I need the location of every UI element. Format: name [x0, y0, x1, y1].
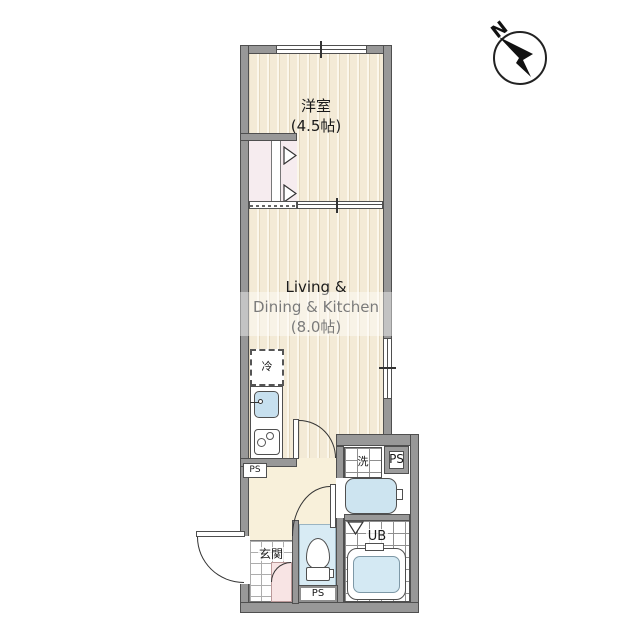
wall-washroom-top: [336, 434, 419, 446]
pipe-space-label: PS: [249, 465, 260, 477]
entrance-label: 玄関: [249, 547, 293, 563]
washbasin-faucet: [396, 489, 403, 500]
entrance-name: 玄関: [258, 547, 284, 561]
faucet-icon: [258, 399, 263, 404]
toilet-door-leaf: [330, 484, 336, 528]
compass: N: [486, 12, 550, 90]
kitchen-sink: [254, 391, 279, 418]
pipe-space-right: PS: [385, 447, 408, 473]
divider-hatch: [249, 201, 297, 209]
bedroom-name: 洋室: [249, 97, 383, 117]
wall-washroom-left: [336, 446, 344, 613]
refrigerator-label: 冷: [262, 360, 273, 375]
burner-icon: [257, 438, 266, 447]
pipe-space-label: PS: [312, 587, 324, 600]
bedroom-size: (4.5帖): [249, 117, 383, 137]
compass-north-label: N: [487, 17, 512, 43]
watermark: [160, 292, 490, 336]
washer-space: 洗: [344, 447, 382, 478]
refrigerator-space: 冷: [250, 349, 284, 386]
toilet-tank: [306, 567, 330, 581]
pipe-space-left: PS: [243, 463, 267, 478]
window-top-tick: [320, 41, 322, 58]
bathtub-inner: [353, 556, 400, 593]
compass-needle-icon: [499, 37, 533, 77]
pipe-space-bottom: PS: [299, 586, 337, 602]
sliding-door: [297, 201, 383, 209]
closet-folding-door-icon: [283, 146, 297, 165]
window-right-tick: [379, 367, 396, 369]
burner-icon: [266, 432, 274, 440]
washroom-door-opening: [336, 478, 344, 518]
wall-bottom: [240, 602, 419, 613]
wall-right-lower: [410, 434, 419, 613]
toilet-control: [329, 569, 334, 578]
toilet-bowl: [306, 538, 330, 569]
floorplan-canvas: 冷 洗 PS UB PS PS: [0, 0, 640, 640]
washbasin: [345, 478, 397, 514]
bathtub-ledge: [365, 543, 384, 551]
closet-shelf: [271, 141, 281, 202]
unit-bath-text: UB: [366, 529, 388, 544]
washer-label: 洗: [358, 455, 369, 470]
divider-tick: [336, 198, 338, 213]
entry-door-swing: [197, 537, 244, 583]
pipe-space-label: PS: [389, 452, 404, 468]
bedroom-label: 洋室 (4.5帖): [249, 97, 383, 137]
